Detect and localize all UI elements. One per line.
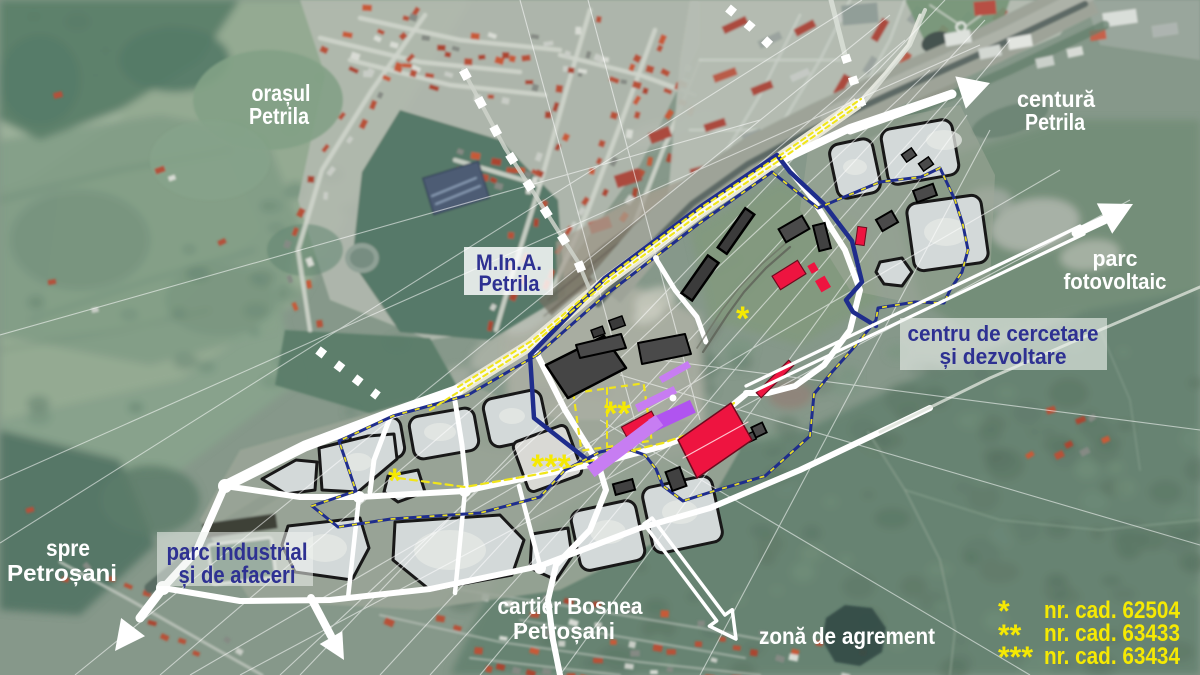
svg-text:parc: parc (1093, 246, 1138, 271)
svg-text:fotovoltaic: fotovoltaic (1064, 269, 1167, 294)
svg-text:spre: spre (46, 535, 90, 561)
svg-text:cartier Bosnea: cartier Bosnea (498, 593, 643, 619)
svg-text:**: ** (604, 395, 631, 433)
svg-text:***: *** (531, 448, 571, 486)
svg-text:Petrila: Petrila (1025, 109, 1085, 135)
svg-text:și de afaceri: și de afaceri (179, 562, 296, 589)
svg-text:și dezvoltare: și dezvoltare (940, 344, 1067, 369)
svg-text:centru de cercetare: centru de cercetare (908, 321, 1099, 346)
svg-text:*: * (388, 462, 402, 500)
svg-text:Petroșani: Petroșani (7, 560, 117, 587)
svg-text:*: * (736, 300, 750, 338)
svg-text:nr. cad. 63434: nr. cad. 63434 (1044, 643, 1181, 670)
svg-text:***: *** (998, 641, 1033, 674)
svg-text:Petrila: Petrila (479, 271, 541, 296)
svg-text:zonă de agrement: zonă de agrement (759, 623, 935, 649)
svg-text:Petrila: Petrila (249, 103, 309, 129)
svg-text:Petroșani: Petroșani (513, 618, 615, 645)
